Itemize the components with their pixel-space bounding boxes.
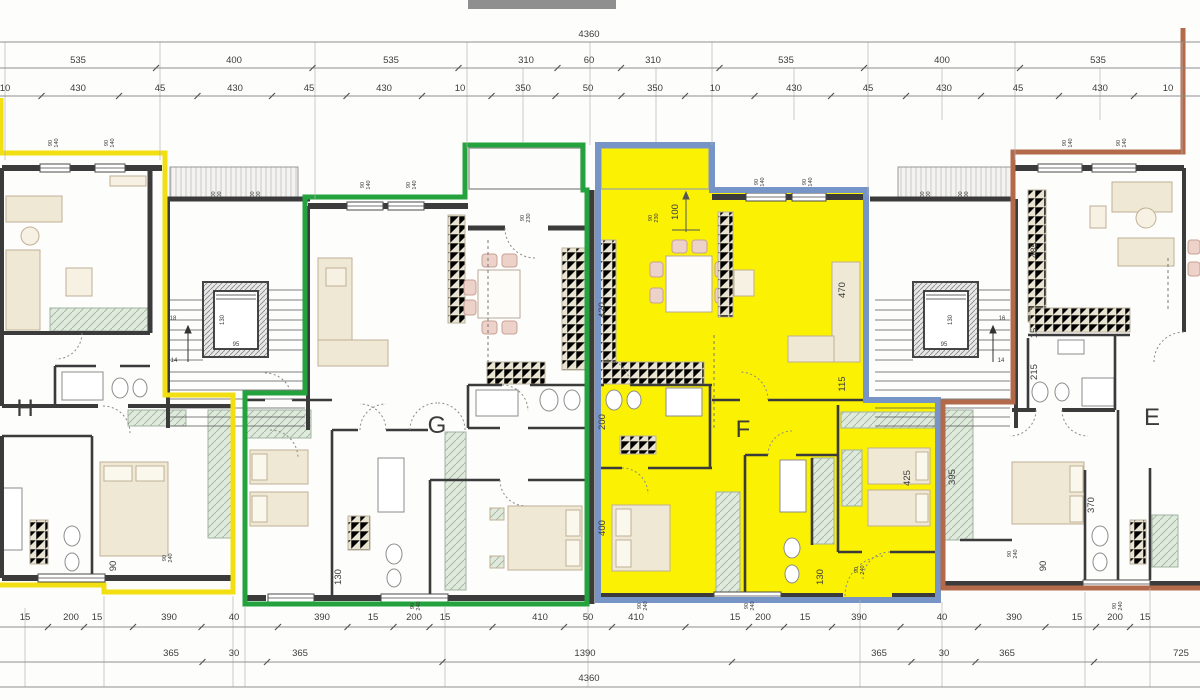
cropped-header-mark xyxy=(468,0,616,9)
label: 15 xyxy=(730,612,741,623)
label: 14 xyxy=(998,358,1005,364)
label: 130 xyxy=(815,569,826,585)
label: 95 xyxy=(233,342,240,348)
label: 430 xyxy=(1092,83,1108,94)
label: 200 xyxy=(755,612,771,623)
balcony-g-rail xyxy=(469,148,581,189)
label: 200 xyxy=(63,612,79,623)
label: 535 xyxy=(383,55,399,66)
label: 535 xyxy=(778,55,794,66)
label: 4360 xyxy=(578,29,599,40)
label: 200 xyxy=(1107,612,1123,623)
label: 365 xyxy=(163,648,179,659)
label: 45 xyxy=(304,83,315,94)
label: 45 xyxy=(1013,83,1024,94)
label: 240 xyxy=(1118,601,1124,610)
label: 100 xyxy=(670,204,681,220)
label: 130 xyxy=(948,314,954,325)
label: 10 xyxy=(455,83,466,94)
balconies xyxy=(170,148,1012,197)
label: 16 xyxy=(999,316,1006,322)
label: 410 xyxy=(628,612,644,623)
label: 200 xyxy=(256,191,262,200)
label: 200 xyxy=(406,612,422,623)
label: 430 xyxy=(227,83,243,94)
label: H xyxy=(16,395,33,422)
label: 400 xyxy=(226,55,242,66)
label: 15 xyxy=(1072,612,1083,623)
label: 15 xyxy=(92,612,103,623)
label: 310 xyxy=(518,55,534,66)
label: 425 xyxy=(902,470,913,486)
label: 140 xyxy=(412,180,418,189)
label: 430 xyxy=(936,83,952,94)
label: 40 xyxy=(937,612,948,623)
label: 240 xyxy=(168,553,174,562)
label: 50 xyxy=(583,612,594,623)
label: 240 xyxy=(416,601,422,610)
label: G xyxy=(428,412,447,439)
label: 200 xyxy=(597,414,608,430)
label: 390 xyxy=(851,612,867,623)
label: 115 xyxy=(837,376,848,391)
label: 130 xyxy=(333,569,344,585)
label: 140 xyxy=(1122,138,1128,147)
label: 390 xyxy=(161,612,177,623)
label: 200 xyxy=(217,191,223,200)
label: 350 xyxy=(647,83,663,94)
label: 230 xyxy=(654,213,660,222)
label: 140 xyxy=(760,177,766,186)
label: 4360 xyxy=(578,673,599,684)
label: 535 xyxy=(70,55,86,66)
label: 470 xyxy=(837,282,848,298)
label: 240 xyxy=(860,565,866,574)
label: 30 xyxy=(229,648,240,659)
label: 240 xyxy=(750,601,756,610)
label: 200 xyxy=(926,191,932,200)
label: 15 xyxy=(800,612,811,623)
label: 240 xyxy=(1013,549,1019,558)
label: 430 xyxy=(70,83,86,94)
label: 1390 xyxy=(574,648,595,659)
label: 15 xyxy=(368,612,379,623)
label: 140 xyxy=(808,177,814,186)
label: 410 xyxy=(532,612,548,623)
label: 420 xyxy=(597,302,608,318)
balcony-hatch-left-core xyxy=(170,167,298,197)
label: 140 xyxy=(366,180,372,189)
label: 15 xyxy=(1140,612,1151,623)
label: 15 xyxy=(20,612,31,623)
label: 230 xyxy=(526,213,532,222)
label: 45 xyxy=(863,83,874,94)
label: 140 xyxy=(1068,138,1074,147)
label: 30 xyxy=(939,648,950,659)
label: 310 xyxy=(645,55,661,66)
label: 430 xyxy=(786,83,802,94)
label: 535 xyxy=(1090,55,1106,66)
balcony-hatch-right-core xyxy=(898,167,1012,197)
label: 10 xyxy=(710,83,721,94)
label: 365 xyxy=(871,648,887,659)
label: 400 xyxy=(597,520,608,536)
label: 200 xyxy=(964,191,970,200)
label: 390 xyxy=(314,612,330,623)
label: E xyxy=(1144,404,1160,431)
label: 350 xyxy=(515,83,531,94)
label: 60 xyxy=(584,55,595,66)
label: 130 xyxy=(220,314,226,325)
label: 140 xyxy=(54,138,60,147)
label: 365 xyxy=(292,648,308,659)
label: 215 xyxy=(1029,364,1040,380)
label: 395 xyxy=(947,469,958,485)
elevator-cab-right xyxy=(924,291,968,349)
label: 10 xyxy=(0,83,10,94)
floor-plan-drawing: 4360535400535310603105354005351043045430… xyxy=(0,0,1200,700)
label: 240 xyxy=(643,601,649,610)
label: 15 xyxy=(1029,328,1040,339)
label: 365 xyxy=(999,648,1015,659)
label: 400 xyxy=(934,55,950,66)
label: 50 xyxy=(583,83,594,94)
label: 725 xyxy=(1173,648,1189,659)
label: 90 xyxy=(1038,561,1049,572)
label: 95 xyxy=(941,342,948,348)
label: 370 xyxy=(1086,497,1097,513)
label: 18 xyxy=(170,316,177,322)
label: F xyxy=(736,416,751,443)
floor-plan-page: 4360535400535310603105354005351043045430… xyxy=(0,0,1200,700)
label: 140 xyxy=(110,138,116,147)
label: 45 xyxy=(155,83,166,94)
label: 15 xyxy=(440,612,451,623)
label: 390 xyxy=(1006,612,1022,623)
label: 485 xyxy=(1029,242,1040,258)
label: 10 xyxy=(1163,83,1174,94)
label: 430 xyxy=(376,83,392,94)
label: 90 xyxy=(108,561,119,572)
label: 40 xyxy=(229,612,240,623)
label: 14 xyxy=(171,358,178,364)
